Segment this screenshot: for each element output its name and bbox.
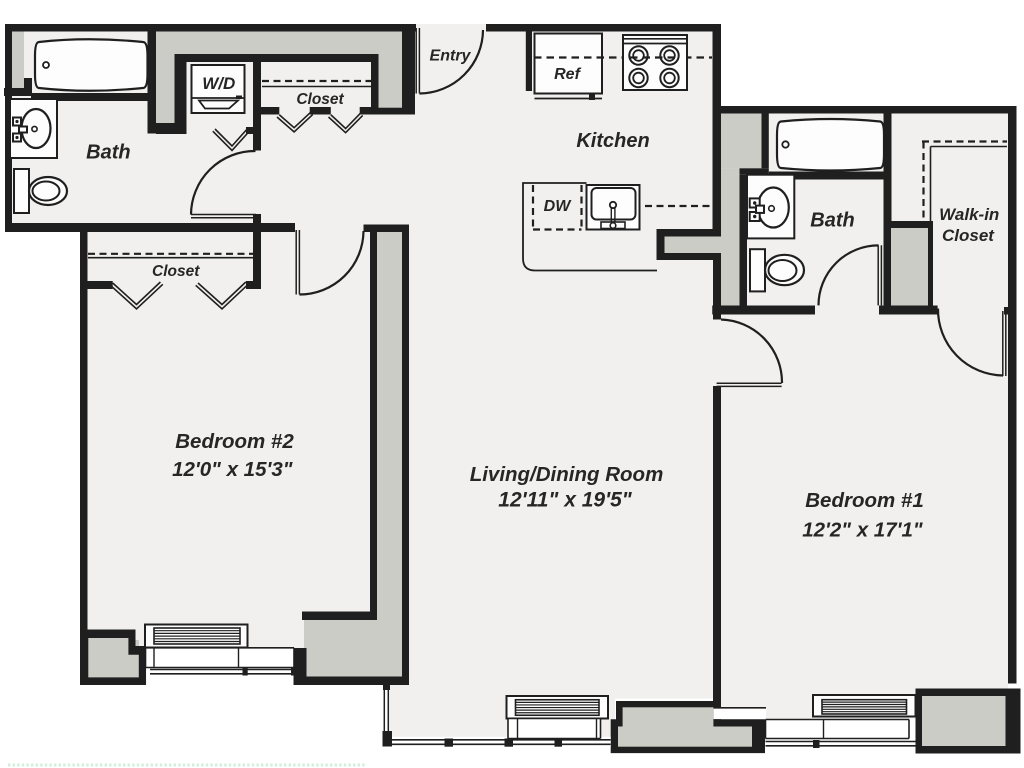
svg-text:Bedroom #2: Bedroom #2 [175,430,294,453]
svg-text:DW: DW [544,198,573,215]
svg-text:Bedroom #1: Bedroom #1 [805,489,923,512]
svg-text:Closet: Closet [942,226,995,245]
svg-text:Bath: Bath [810,210,854,232]
svg-text:Entry: Entry [430,48,472,65]
svg-text:Walk-in: Walk-in [939,205,999,224]
svg-text:12'0" x 15'3": 12'0" x 15'3" [172,458,293,481]
svg-text:Bath: Bath [86,142,130,164]
svg-text:Kitchen: Kitchen [576,130,649,152]
svg-text:12'2" x 17'1": 12'2" x 17'1" [802,519,923,542]
svg-text:Living/Dining Room: Living/Dining Room [470,463,664,486]
svg-text:Closet: Closet [296,91,344,108]
svg-text:W/D: W/D [202,74,235,93]
svg-text:12'11" x 19'5": 12'11" x 19'5" [498,489,632,512]
svg-text:Closet: Closet [152,263,200,280]
svg-text:Ref: Ref [554,66,581,83]
